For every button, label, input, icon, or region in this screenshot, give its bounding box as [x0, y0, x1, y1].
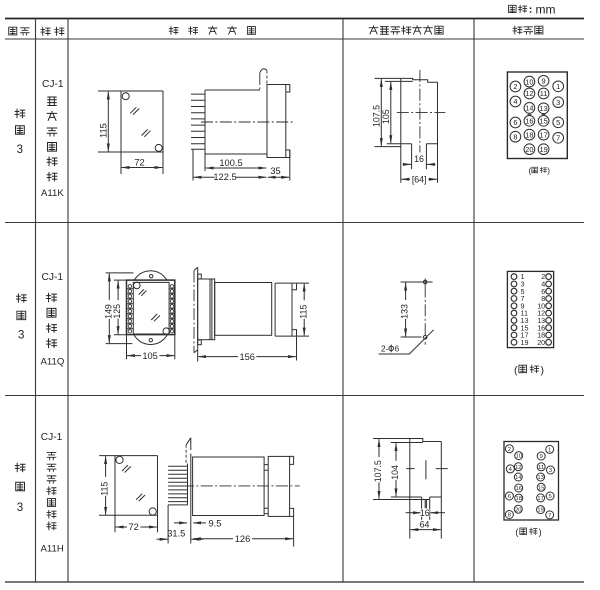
svg-text:19: 19 — [537, 508, 543, 514]
svg-text:2: 2 — [508, 447, 511, 453]
svg-text:mm: mm — [536, 3, 556, 17]
svg-text:35: 35 — [270, 166, 280, 176]
svg-text:115: 115 — [298, 305, 308, 319]
svg-text:2: 2 — [513, 82, 517, 91]
svg-text:10: 10 — [525, 77, 533, 86]
svg-text:1: 1 — [548, 448, 551, 454]
svg-text:31.5: 31.5 — [167, 529, 185, 539]
svg-text:7: 7 — [548, 513, 551, 519]
svg-text:64: 64 — [420, 520, 430, 530]
svg-text:10: 10 — [515, 454, 521, 460]
svg-text:9.5: 9.5 — [209, 519, 222, 529]
svg-text:15: 15 — [538, 485, 544, 491]
svg-text:(: ( — [529, 167, 532, 176]
svg-text:17: 17 — [539, 130, 547, 139]
svg-text:): ) — [547, 167, 550, 176]
svg-text:13: 13 — [539, 104, 547, 113]
svg-text:11: 11 — [538, 465, 544, 471]
svg-text:122.5: 122.5 — [213, 172, 236, 182]
svg-text:16: 16 — [414, 154, 424, 164]
svg-text:11: 11 — [540, 89, 548, 98]
svg-text:133: 133 — [400, 304, 410, 319]
svg-text:6: 6 — [395, 345, 400, 354]
svg-text:107.5: 107.5 — [373, 460, 383, 482]
svg-text:72: 72 — [134, 158, 144, 168]
svg-text:18: 18 — [525, 130, 533, 139]
svg-text:14: 14 — [515, 475, 522, 481]
svg-text:3: 3 — [17, 144, 23, 156]
svg-text:18: 18 — [515, 496, 521, 502]
svg-text:5: 5 — [548, 494, 551, 500]
svg-text:125: 125 — [112, 304, 122, 319]
svg-text:20: 20 — [525, 145, 533, 154]
svg-text:A11H: A11H — [41, 544, 64, 555]
svg-text:105: 105 — [381, 109, 391, 124]
svg-text:19: 19 — [539, 145, 547, 154]
svg-text:CJ-1: CJ-1 — [42, 272, 64, 283]
svg-text:A11K: A11K — [41, 188, 64, 199]
svg-text:3: 3 — [549, 468, 552, 474]
svg-text:(: ( — [514, 365, 518, 377]
svg-text:): ) — [541, 365, 545, 377]
svg-text:6: 6 — [508, 494, 511, 500]
svg-text:9: 9 — [542, 77, 546, 86]
svg-text:12: 12 — [525, 89, 533, 98]
svg-text:104: 104 — [390, 465, 400, 480]
svg-text:16: 16 — [420, 508, 430, 518]
svg-text:105: 105 — [142, 351, 158, 361]
svg-text:8: 8 — [508, 513, 511, 519]
svg-text:7: 7 — [556, 134, 560, 143]
svg-text:CJ-1: CJ-1 — [41, 432, 63, 443]
svg-text:[64]: [64] — [412, 175, 427, 185]
svg-text:14: 14 — [525, 104, 533, 113]
svg-text:CJ-1: CJ-1 — [42, 79, 64, 90]
svg-text:8: 8 — [513, 132, 517, 141]
svg-text:13: 13 — [537, 475, 543, 481]
svg-text:100.5: 100.5 — [219, 158, 242, 168]
svg-text:): ) — [539, 527, 542, 537]
svg-text:126: 126 — [235, 534, 251, 544]
svg-text:6: 6 — [513, 118, 517, 127]
svg-text:12: 12 — [515, 465, 521, 471]
svg-text:16: 16 — [525, 117, 533, 126]
svg-text:2-: 2- — [381, 345, 389, 354]
svg-text:A11Q: A11Q — [41, 357, 65, 368]
svg-text:15: 15 — [539, 117, 547, 126]
svg-text:20: 20 — [537, 338, 545, 347]
svg-text:3: 3 — [18, 330, 24, 342]
svg-text:20: 20 — [515, 507, 521, 513]
svg-text:19: 19 — [521, 338, 529, 347]
svg-text:9: 9 — [540, 454, 543, 460]
svg-text:3: 3 — [17, 502, 23, 514]
svg-text:4: 4 — [513, 97, 517, 106]
svg-text:17: 17 — [537, 496, 543, 502]
svg-text:(: ( — [515, 527, 518, 537]
svg-text:16: 16 — [515, 486, 521, 492]
svg-text:72: 72 — [129, 522, 139, 532]
svg-text:115: 115 — [100, 482, 110, 496]
svg-text:3: 3 — [556, 98, 560, 107]
svg-text:5: 5 — [556, 118, 560, 127]
svg-text:1: 1 — [556, 82, 560, 91]
svg-text:156: 156 — [239, 352, 255, 362]
svg-text:115: 115 — [99, 123, 109, 138]
svg-text:107.5: 107.5 — [372, 105, 382, 127]
